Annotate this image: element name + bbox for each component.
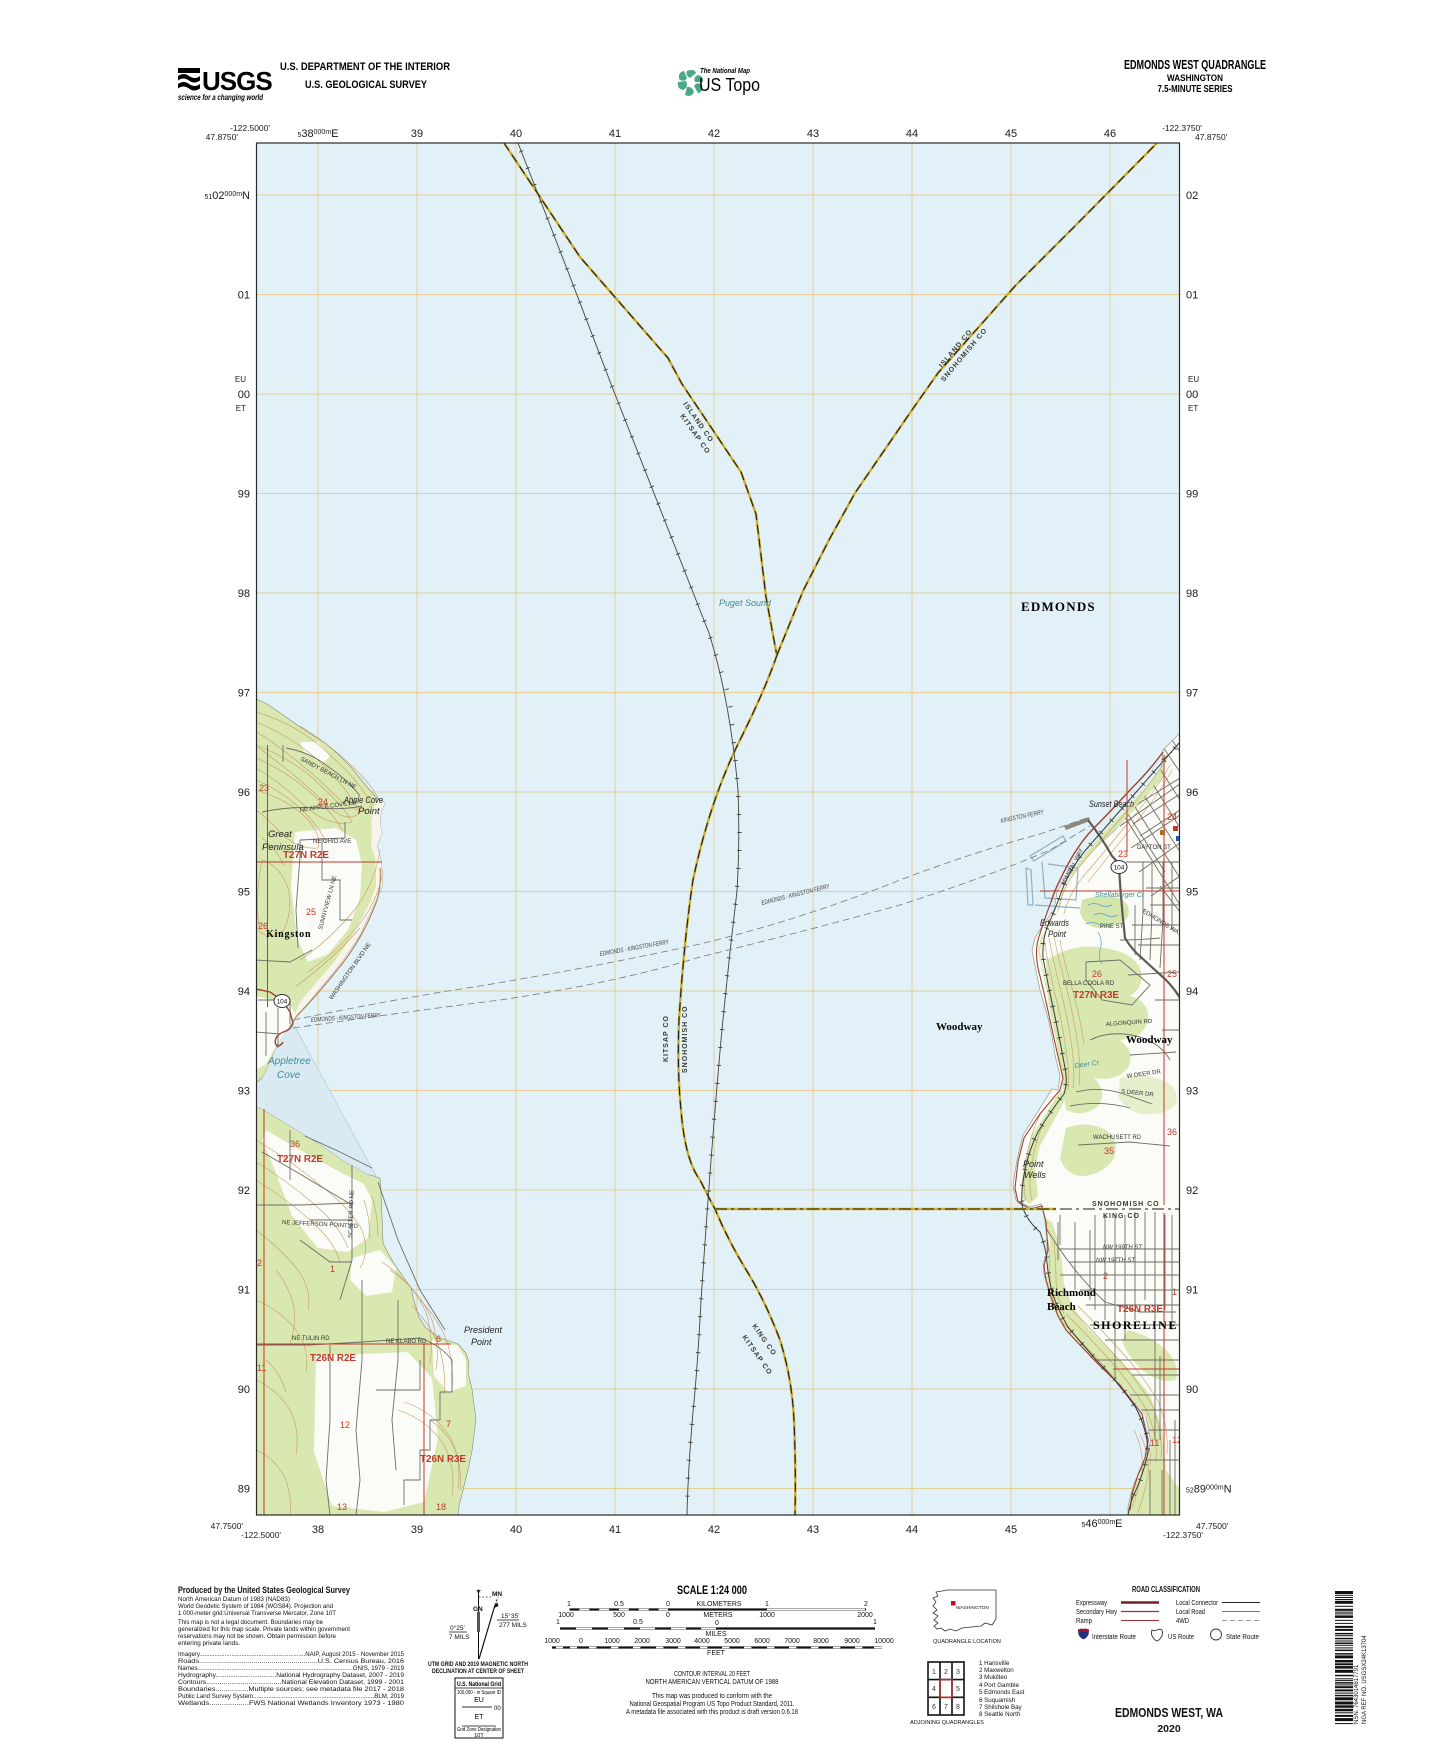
svg-text:Kingston: Kingston xyxy=(266,929,311,940)
svg-text:92: 92 xyxy=(238,1185,250,1197)
svg-text:USGS: USGS xyxy=(202,66,272,96)
svg-text:2020: 2020 xyxy=(1157,1723,1181,1735)
svg-text:38: 38 xyxy=(312,1524,324,1536)
svg-text:generalized for this map scale: generalized for this map scale. Private … xyxy=(178,1626,350,1633)
svg-text:18: 18 xyxy=(436,1502,446,1512)
svg-text:11: 11 xyxy=(1150,1438,1159,1448)
svg-text:25: 25 xyxy=(306,907,316,917)
svg-text:41: 41 xyxy=(609,1524,621,1536)
svg-text:GN: GN xyxy=(473,1606,483,1613)
svg-text:MN: MN xyxy=(492,1591,502,1598)
svg-text:47.7500': 47.7500' xyxy=(211,1521,244,1531)
svg-text:1: 1 xyxy=(932,1669,936,1676)
svg-text:95: 95 xyxy=(1186,887,1198,899)
svg-text:13: 13 xyxy=(337,1502,347,1512)
svg-text:Point: Point xyxy=(1048,929,1066,939)
svg-text:8: 8 xyxy=(956,1704,960,1711)
svg-text:SHORELINE: SHORELINE xyxy=(1093,1318,1178,1332)
svg-text:1: 1 xyxy=(1172,1287,1177,1297)
svg-text:NSN. 7643014617791: NSN. 7643014617791 xyxy=(1354,1664,1360,1724)
svg-text:47.8750': 47.8750' xyxy=(1195,132,1228,142)
svg-text:93: 93 xyxy=(238,1086,250,1098)
svg-text:1: 1 xyxy=(873,1619,877,1626)
svg-text:26: 26 xyxy=(1092,969,1102,979)
svg-text:5000: 5000 xyxy=(724,1638,740,1645)
svg-text:T26N R3E: T26N R3E xyxy=(1117,1303,1163,1315)
svg-text:EDMONDS WEST, WA: EDMONDS WEST, WA xyxy=(1115,1705,1223,1720)
svg-text:1: 1 xyxy=(330,1264,335,1274)
svg-text:44: 44 xyxy=(906,1524,918,1536)
svg-text:Contours......................: Contours................................… xyxy=(178,1679,405,1686)
svg-text:4: 4 xyxy=(932,1686,936,1693)
svg-text:2 Maxwelton: 2 Maxwelton xyxy=(979,1667,1014,1674)
svg-text:2: 2 xyxy=(944,1669,948,1676)
svg-text:EU: EU xyxy=(1188,375,1199,384)
svg-text:98: 98 xyxy=(1186,588,1198,600)
svg-text:0: 0 xyxy=(579,1638,583,1645)
svg-text:World Geodetic System of 1984: World Geodetic System of 1984 (WGS84). P… xyxy=(178,1603,333,1610)
svg-text:Local Road: Local Road xyxy=(1176,1609,1205,1616)
svg-text:PINE ST: PINE ST xyxy=(1100,924,1124,930)
svg-text:NGA REF NO. USGSX24K13704: NGA REF NO. USGSX24K13704 xyxy=(1362,1635,1368,1724)
svg-text:EDMONDS: EDMONDS xyxy=(1021,599,1096,614)
svg-text:Edwards: Edwards xyxy=(1040,918,1069,928)
svg-text:0.5: 0.5 xyxy=(614,1601,624,1608)
svg-text:500: 500 xyxy=(613,1612,625,1619)
svg-text:3 Mukilteo: 3 Mukilteo xyxy=(979,1674,1008,1681)
svg-text:EU: EU xyxy=(235,375,246,384)
svg-text:4 Port Gamble: 4 Port Gamble xyxy=(979,1682,1019,1689)
svg-text:45: 45 xyxy=(1005,1524,1017,1536)
svg-text:U.S. National Grid: U.S. National Grid xyxy=(457,1682,501,1688)
svg-text:METERS: METERS xyxy=(703,1612,733,1619)
svg-text:1: 1 xyxy=(567,1601,571,1608)
svg-text:ADJOINING QUADRANGLES: ADJOINING QUADRANGLES xyxy=(910,1720,984,1726)
svg-text:96: 96 xyxy=(238,787,250,799)
svg-text:President: President xyxy=(464,1325,503,1335)
svg-text:-122.5000': -122.5000' xyxy=(241,1530,281,1540)
svg-text:Wells: Wells xyxy=(1024,1170,1046,1180)
svg-text:Boundaries................Mult: Boundaries................Multiple sourc… xyxy=(178,1686,405,1693)
svg-text:99: 99 xyxy=(238,489,250,501)
svg-text:0.5: 0.5 xyxy=(633,1619,643,1626)
svg-text:90: 90 xyxy=(238,1384,250,1396)
svg-text:NORTH AMERICAN VERTICAL DATUM: NORTH AMERICAN VERTICAL DATUM OF 1988 xyxy=(646,1679,779,1686)
svg-text:5: 5 xyxy=(956,1686,960,1693)
svg-text:T27N R2E: T27N R2E xyxy=(277,1153,323,1165)
svg-text:00: 00 xyxy=(494,1706,501,1712)
svg-text:92: 92 xyxy=(1186,1185,1198,1197)
svg-text:2000: 2000 xyxy=(634,1638,650,1645)
svg-text:Point: Point xyxy=(471,1337,492,1347)
svg-text:science for a changing world: science for a changing world xyxy=(178,93,264,102)
svg-text:36: 36 xyxy=(1167,1127,1177,1137)
svg-text:Peninsula: Peninsula xyxy=(262,842,304,853)
svg-text:A metadata file associated wit: A metadata file associated with this pro… xyxy=(626,1709,798,1716)
svg-text:46: 46 xyxy=(1104,128,1116,140)
svg-text:2: 2 xyxy=(1103,1271,1108,1281)
svg-text:Shellabarger Cr: Shellabarger Cr xyxy=(1095,892,1145,899)
svg-text:0: 0 xyxy=(666,1612,670,1619)
svg-text:State Route: State Route xyxy=(1226,1634,1259,1641)
svg-text:NW 197TH ST: NW 197TH ST xyxy=(1096,1258,1136,1264)
svg-text:24: 24 xyxy=(1167,812,1177,822)
svg-text:8 Seattle North: 8 Seattle North xyxy=(979,1711,1021,1718)
svg-text:02: 02 xyxy=(1186,190,1198,202)
svg-text:Local Connector: Local Connector xyxy=(1176,1600,1219,1607)
svg-text:DECLINATION AT CENTER OF SHEET: DECLINATION AT CENTER OF SHEET xyxy=(432,1668,525,1675)
svg-text:7.5-MINUTE SERIES: 7.5-MINUTE SERIES xyxy=(1158,84,1233,95)
svg-text:Point: Point xyxy=(358,806,380,817)
svg-text:39: 39 xyxy=(411,1524,423,1536)
svg-text:This map is not a legal docume: This map is not a legal document. Bounda… xyxy=(178,1619,323,1626)
svg-text:7: 7 xyxy=(446,1419,451,1429)
svg-text:1000: 1000 xyxy=(604,1638,620,1645)
svg-text:1 000-meter grid:Universal Tra: 1 000-meter grid:Universal Transverse Me… xyxy=(178,1610,336,1617)
svg-text:1000: 1000 xyxy=(544,1638,560,1645)
svg-text:Roads.........................: Roads...................................… xyxy=(178,1658,405,1665)
svg-text:4WD: 4WD xyxy=(1176,1618,1189,1625)
svg-text:6: 6 xyxy=(932,1704,936,1711)
svg-text:23: 23 xyxy=(1118,849,1128,859)
svg-text:US Route: US Route xyxy=(1168,1634,1194,1641)
svg-text:EU: EU xyxy=(474,1697,484,1704)
svg-text:01: 01 xyxy=(238,290,250,302)
svg-text:43: 43 xyxy=(807,128,819,140)
svg-text:Puget Sound: Puget Sound xyxy=(719,598,772,608)
svg-text:104: 104 xyxy=(1114,865,1125,872)
svg-text:Interstate Route: Interstate Route xyxy=(1092,1634,1136,1641)
svg-text:NE KLABO RD: NE KLABO RD xyxy=(386,1339,427,1345)
svg-text:MILES: MILES xyxy=(705,1631,726,1638)
svg-text:Woodway: Woodway xyxy=(1126,1034,1173,1046)
svg-text:2: 2 xyxy=(257,1258,262,1268)
svg-text:90: 90 xyxy=(1186,1384,1198,1396)
svg-text:CONTOUR INTERVAL 20 FEET: CONTOUR INTERVAL 20 FEET xyxy=(674,1671,751,1678)
svg-text:WASHINGTON: WASHINGTON xyxy=(956,1605,989,1611)
svg-text:100,000 - m Square ID: 100,000 - m Square ID xyxy=(457,1690,501,1696)
svg-text:0: 0 xyxy=(715,1620,719,1627)
svg-text:93: 93 xyxy=(1186,1086,1198,1098)
svg-text:8000: 8000 xyxy=(813,1638,829,1645)
svg-text:36: 36 xyxy=(290,1139,300,1149)
svg-text:95: 95 xyxy=(238,887,250,899)
svg-text:DAYTON ST: DAYTON ST xyxy=(1137,845,1171,851)
svg-text:99: 99 xyxy=(1186,489,1198,501)
svg-text:35: 35 xyxy=(1104,1146,1114,1156)
svg-text:Point: Point xyxy=(1023,1159,1044,1169)
svg-text:6: 6 xyxy=(436,1334,441,1344)
svg-text:North American Datum of 1983 (: North American Datum of 1983 (NAD83) xyxy=(178,1596,290,1603)
svg-text:104: 104 xyxy=(277,999,288,1006)
svg-text:This map was produced to confo: This map was produced to conform with th… xyxy=(652,1693,772,1700)
svg-text:0°25': 0°25' xyxy=(450,1624,465,1632)
svg-text:The National Map: The National Map xyxy=(700,66,750,75)
svg-text:1000: 1000 xyxy=(558,1612,574,1619)
svg-text:U.S. GEOLOGICAL SURVEY: U.S. GEOLOGICAL SURVEY xyxy=(305,79,428,91)
svg-text:T26N R2E: T26N R2E xyxy=(310,1352,356,1364)
svg-text:45: 45 xyxy=(1005,128,1017,140)
svg-text:SNOHOMISH CO: SNOHOMISH CO xyxy=(1092,1201,1160,1208)
svg-text:2000: 2000 xyxy=(857,1612,873,1619)
svg-text:FEET: FEET xyxy=(707,1650,726,1657)
svg-text:NE TULIN RD: NE TULIN RD xyxy=(292,1336,330,1342)
svg-text:T27N R3E: T27N R3E xyxy=(1073,989,1119,1001)
svg-text:Secondary Hwy: Secondary Hwy xyxy=(1076,1609,1117,1616)
svg-text:97: 97 xyxy=(238,688,250,700)
svg-text:NE OHIO AVE: NE OHIO AVE xyxy=(313,839,351,845)
svg-text:4000: 4000 xyxy=(694,1638,710,1645)
svg-text:U.S. DEPARTMENT OF THE INTERIO: U.S. DEPARTMENT OF THE INTERIOR xyxy=(280,61,450,73)
svg-text:Wetlands...................FWS: Wetlands...................FWS National … xyxy=(178,1700,405,1707)
svg-text:3: 3 xyxy=(956,1669,960,1676)
svg-text:Appletree: Appletree xyxy=(267,1056,311,1067)
svg-text:ET: ET xyxy=(236,404,246,413)
svg-text:ET: ET xyxy=(1188,404,1198,413)
svg-text:Great: Great xyxy=(268,829,292,840)
svg-text:1: 1 xyxy=(556,1619,560,1626)
svg-text:Cove: Cove xyxy=(277,1070,301,1081)
svg-text:94: 94 xyxy=(1186,986,1198,998)
svg-text:WASHINGTON: WASHINGTON xyxy=(1167,73,1223,84)
svg-text:ET: ET xyxy=(475,1714,485,1721)
svg-text:reservations may not be shown.: reservations may not be shown. Obtain pe… xyxy=(178,1633,336,1640)
svg-text:Imagery.......................: Imagery.................................… xyxy=(178,1651,404,1658)
svg-text:89: 89 xyxy=(238,1484,250,1496)
svg-text:QUADRANGLE LOCATION: QUADRANGLE LOCATION xyxy=(933,1639,1001,1645)
svg-text:KITSAP CO: KITSAP CO xyxy=(663,1015,670,1062)
svg-text:23: 23 xyxy=(259,783,269,793)
svg-text:UTM GRID AND 2019 MAGNETIC NOR: UTM GRID AND 2019 MAGNETIC NORTH xyxy=(428,1661,528,1668)
svg-text:1000: 1000 xyxy=(759,1612,775,1619)
svg-text:00: 00 xyxy=(238,389,250,401)
svg-text:40: 40 xyxy=(510,128,522,140)
svg-text:94: 94 xyxy=(238,986,250,998)
svg-text:Public Land Survey Sy: Public Land Survey System...............… xyxy=(178,1693,404,1700)
svg-text:Produced by the United States: Produced by the United States Geological… xyxy=(178,1585,350,1595)
svg-text:3000: 3000 xyxy=(665,1638,681,1645)
svg-text:Woodway: Woodway xyxy=(936,1021,983,1033)
svg-text:00: 00 xyxy=(1186,389,1198,401)
svg-text:11: 11 xyxy=(257,1363,266,1373)
svg-text:10000: 10000 xyxy=(874,1638,894,1645)
svg-text:44: 44 xyxy=(906,128,918,140)
svg-text:-122.3750': -122.3750' xyxy=(1163,1530,1203,1540)
svg-text:entering private lands.: entering private lands. xyxy=(178,1640,240,1647)
svg-text:97: 97 xyxy=(1186,688,1198,700)
svg-text:Hydrography...................: Hydrography.............................… xyxy=(178,1672,405,1679)
svg-text:1: 1 xyxy=(765,1601,769,1608)
svg-text:Sunset Beach: Sunset Beach xyxy=(1089,799,1134,810)
svg-text:National Geospatial Program US: National Geospatial Program US Topo Prod… xyxy=(630,1701,795,1708)
svg-text:5 Edmonds East: 5 Edmonds East xyxy=(979,1689,1025,1696)
svg-text:39: 39 xyxy=(411,128,423,140)
svg-text:2: 2 xyxy=(864,1601,868,1608)
svg-text:0: 0 xyxy=(666,1601,670,1608)
svg-text:91: 91 xyxy=(238,1285,250,1297)
svg-text:Richmond: Richmond xyxy=(1047,1287,1096,1299)
svg-text:Ramp: Ramp xyxy=(1076,1618,1092,1625)
svg-text:SNOHOMISH CO: SNOHOMISH CO xyxy=(682,1005,689,1073)
svg-text:98: 98 xyxy=(238,588,250,600)
svg-text:43: 43 xyxy=(807,1524,819,1536)
svg-text:7 Shilshole Bay: 7 Shilshole Bay xyxy=(979,1704,1023,1711)
svg-text:US Topo: US Topo xyxy=(699,75,760,95)
svg-text:KING CO: KING CO xyxy=(1103,1213,1140,1220)
svg-text:NW 199TH ST: NW 199TH ST xyxy=(1103,1245,1143,1251)
svg-text:7: 7 xyxy=(944,1704,948,1711)
svg-text:40: 40 xyxy=(510,1524,522,1536)
svg-text:EDMONDS WEST QUADRANGLE: EDMONDS WEST QUADRANGLE xyxy=(1124,58,1266,72)
svg-text:T26N R3E: T26N R3E xyxy=(420,1453,466,1465)
svg-text:277 MILS: 277 MILS xyxy=(499,1622,527,1629)
svg-text:WACHUSETT RD: WACHUSETT RD xyxy=(1093,1135,1142,1141)
svg-text:Beach: Beach xyxy=(1047,1301,1076,1313)
svg-text:9000: 9000 xyxy=(844,1638,860,1645)
svg-text:42: 42 xyxy=(708,1524,720,1536)
svg-text:6 Suquamish: 6 Suquamish xyxy=(979,1697,1016,1704)
svg-text:15°35': 15°35' xyxy=(501,1612,519,1620)
svg-text:Expressway: Expressway xyxy=(1076,1600,1107,1607)
svg-text:6000: 6000 xyxy=(754,1638,770,1645)
svg-text:42: 42 xyxy=(708,128,720,140)
svg-text:ROAD CLASSIFICATION: ROAD CLASSIFICATION xyxy=(1132,1585,1200,1594)
svg-text:Names.........................: Names...................................… xyxy=(178,1665,404,1672)
svg-text:KILOMETERS: KILOMETERS xyxy=(696,1601,741,1608)
svg-text:BELLA COOLA RD: BELLA COOLA RD xyxy=(1063,981,1115,987)
svg-text:1 Hansville: 1 Hansville xyxy=(979,1660,1010,1667)
svg-text:01: 01 xyxy=(1186,290,1198,302)
svg-text:10T: 10T xyxy=(474,1733,484,1739)
svg-text:47.8750': 47.8750' xyxy=(206,132,239,142)
svg-text:91: 91 xyxy=(1186,1285,1198,1297)
svg-text:7 MILS: 7 MILS xyxy=(449,1634,470,1641)
svg-text:SCALE 1:24 000: SCALE 1:24 000 xyxy=(677,1585,747,1597)
svg-text:7000: 7000 xyxy=(784,1638,800,1645)
svg-text:12: 12 xyxy=(340,1420,350,1430)
svg-text:25: 25 xyxy=(1167,969,1177,979)
svg-text:41: 41 xyxy=(609,128,621,140)
svg-text:96: 96 xyxy=(1186,787,1198,799)
